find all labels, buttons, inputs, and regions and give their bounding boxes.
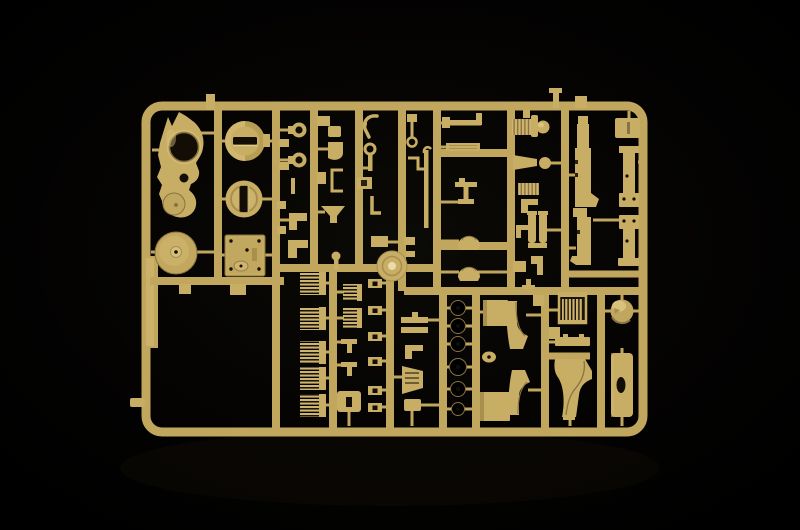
axle-rivet xyxy=(632,197,635,200)
idler-dot xyxy=(174,250,178,254)
clamp-hole xyxy=(295,126,302,133)
carb-ball xyxy=(537,121,550,134)
cylinder-cap xyxy=(527,211,537,215)
axle-foot xyxy=(618,258,639,266)
leaf-spring-notch xyxy=(575,160,578,164)
rounded-tab xyxy=(328,126,341,137)
shield-part xyxy=(328,142,343,160)
pin-rod xyxy=(334,259,339,270)
axle-block xyxy=(619,193,639,207)
ring-pin-rod xyxy=(368,154,373,171)
axle-block xyxy=(619,215,639,229)
axle-rivet xyxy=(625,239,628,242)
cap-block xyxy=(404,399,421,411)
plate-slot xyxy=(252,248,257,261)
wide-bar-face xyxy=(146,258,154,346)
small-block xyxy=(317,172,326,184)
tow-bar-tab xyxy=(563,334,568,338)
hull-plate-edge xyxy=(480,392,484,421)
comb-grille-spine xyxy=(319,307,326,330)
comb-grille-spine xyxy=(319,394,326,417)
axle-rivet xyxy=(632,219,635,222)
slat-plate xyxy=(446,143,480,151)
carb-tab xyxy=(523,110,530,118)
leaf-spring-main xyxy=(577,217,591,257)
gearbox-lobe-dot xyxy=(174,203,178,207)
leaf-spring-main xyxy=(575,148,591,194)
axle-bar xyxy=(623,153,635,195)
t-bracket-bar xyxy=(341,339,357,344)
comb-grille-teeth xyxy=(300,394,321,417)
junction-hub xyxy=(388,262,396,270)
carb-ball-highlight xyxy=(538,123,544,128)
clip-notch xyxy=(373,309,378,314)
hubcap-large-slot xyxy=(233,137,257,145)
plate-rivet xyxy=(257,267,260,270)
small-block xyxy=(279,162,289,170)
road-wheel-dot xyxy=(456,387,460,391)
small-block xyxy=(277,226,286,234)
small-block xyxy=(317,116,330,126)
t-bracket-stem xyxy=(347,367,352,376)
h-bar-tab xyxy=(412,312,418,317)
plate-rivet xyxy=(245,248,248,251)
clip-notch xyxy=(373,360,378,365)
small-block xyxy=(404,237,415,245)
axle-bar-t xyxy=(619,146,639,153)
road-wheel-dot xyxy=(456,365,460,369)
radiator-fins xyxy=(562,299,583,320)
cylinder xyxy=(539,213,547,243)
tab-below-rail-1 xyxy=(179,284,191,294)
small-bracket xyxy=(371,236,388,247)
small-block xyxy=(277,201,286,209)
t-part-h xyxy=(522,285,535,289)
road-wheel-dot xyxy=(456,306,460,310)
road-wheel-dot xyxy=(456,324,460,328)
sprue-stub-1 xyxy=(206,94,215,110)
comb-grille-teeth xyxy=(300,272,321,295)
hatch-plate-edge xyxy=(611,353,614,417)
vent-block-slot xyxy=(346,397,352,407)
spring-block-line xyxy=(627,122,630,134)
gearbox-small-hole xyxy=(180,174,189,183)
gearbox-highlight xyxy=(166,129,176,147)
small-block xyxy=(279,139,289,147)
wedge-ball xyxy=(539,157,551,169)
clip-notch xyxy=(373,335,378,340)
sprue-photo xyxy=(0,0,800,530)
carb-fins xyxy=(512,119,532,135)
h-bar xyxy=(401,327,428,333)
hook-block xyxy=(407,114,417,122)
notch-bracket-hole xyxy=(361,180,367,186)
t-bar-end xyxy=(442,117,450,128)
comb-grille-spine xyxy=(319,272,326,295)
hubcap-slotted-glint xyxy=(248,186,250,212)
comb-grille-teeth xyxy=(300,341,321,364)
hubcap-large-glint xyxy=(233,145,257,147)
t-bracket-bar xyxy=(341,362,357,367)
hatch-hole xyxy=(617,377,626,393)
radiator-top xyxy=(558,292,587,297)
comb-grille-teeth xyxy=(300,307,321,330)
clip-notch xyxy=(373,389,378,394)
plate-oval-dot xyxy=(240,265,243,268)
axle-rivet xyxy=(622,197,625,200)
lamp-top xyxy=(455,182,477,187)
rib-block-fins xyxy=(518,183,539,195)
clamp-hole xyxy=(295,156,302,163)
clip-part xyxy=(513,261,526,272)
small-rod xyxy=(291,178,295,194)
leaf-spring-notch xyxy=(577,230,580,234)
small-comb-teeth xyxy=(343,284,359,301)
cylinder-base xyxy=(528,243,547,248)
screenshot-root xyxy=(0,0,800,530)
hull-plate-edge xyxy=(483,300,487,326)
comb-grille-spine xyxy=(319,341,326,364)
outside-nub xyxy=(130,398,145,407)
lamp-base xyxy=(458,199,474,204)
mudguard-foot xyxy=(563,416,575,420)
tow-bar xyxy=(555,337,590,346)
small-block xyxy=(406,251,415,257)
side-block xyxy=(533,295,544,306)
floor-glow xyxy=(120,430,660,506)
axle-rivet xyxy=(625,174,628,177)
small-comb-spine xyxy=(357,284,362,301)
t-bar-flag xyxy=(476,113,482,125)
lamp-stem xyxy=(464,187,469,200)
cylinder xyxy=(528,213,536,243)
radiator-bottom xyxy=(558,320,587,324)
plate-rivet xyxy=(229,267,232,270)
clip-notch xyxy=(373,406,378,411)
oval-part-dot xyxy=(487,355,491,359)
axle-rivet xyxy=(622,219,625,222)
road-wheel-dot xyxy=(456,342,460,346)
gearbox-lobe xyxy=(163,193,185,215)
leaf-spring-hook xyxy=(573,208,587,217)
lamp-knob xyxy=(459,178,465,182)
clip-notch xyxy=(373,282,378,287)
comb-grille-teeth xyxy=(300,367,321,390)
long-rod xyxy=(424,150,429,228)
leaf-spring-notch xyxy=(575,173,578,177)
small-comb-teeth xyxy=(343,308,359,328)
road-wheel-dot xyxy=(456,407,460,411)
leaf-spring-upper xyxy=(577,124,589,149)
plate-rivet xyxy=(257,239,260,242)
h-bar xyxy=(401,317,428,323)
leaf-spring-top xyxy=(578,116,588,125)
tow-bar-tab xyxy=(579,334,584,338)
plate-rivet xyxy=(229,239,232,242)
comb-grille-spine xyxy=(319,367,326,390)
hubcap-slotted-slot xyxy=(240,186,249,212)
hull-plate xyxy=(480,392,510,421)
axle-bar xyxy=(623,229,635,260)
small-comb-spine xyxy=(357,308,362,328)
sprue-stub-2-cap xyxy=(549,88,562,93)
sprue-tab-top xyxy=(575,96,587,108)
hubcap-tab xyxy=(263,134,270,147)
tab-below-rail-2 xyxy=(230,284,246,295)
t-bracket-stem xyxy=(347,344,352,353)
cylinder-cap xyxy=(538,211,548,215)
